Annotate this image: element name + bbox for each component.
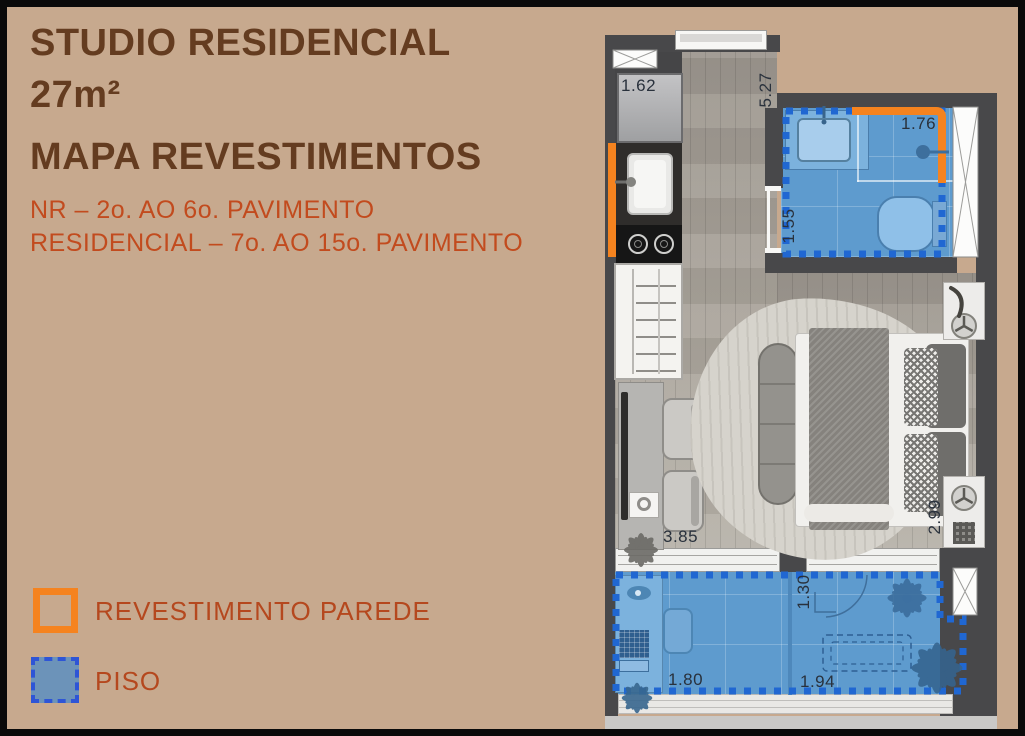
dim-bath-depth: 1.55 — [779, 202, 799, 250]
wall-bath-bottom — [765, 257, 957, 273]
map-title: MAPA REVESTIMENTOS — [30, 136, 482, 179]
dim-balcony-depth: 1.30 — [794, 568, 814, 616]
wardrobe — [614, 263, 683, 380]
decor-tray — [629, 492, 659, 518]
burner-icon — [628, 234, 648, 254]
wall-bath-top — [777, 93, 997, 108]
legend-wall-label: REVESTIMENTO PAREDE — [95, 596, 431, 627]
exterior-ledge — [605, 716, 997, 730]
page: STUDIO RESIDENCIAL 27m² MAPA REVESTIMENT… — [0, 0, 1025, 736]
wall-bath-left — [765, 108, 783, 188]
shower-glass-v — [857, 110, 859, 182]
dim-bath-width: 1.76 — [901, 114, 936, 134]
sliding-door-left — [615, 548, 780, 572]
pillow-zigzag-1 — [904, 348, 938, 426]
subtitle-floors-residencial: RESIDENCIAL – 7o. AO 15o. PAVIMENTO — [30, 229, 523, 258]
page-title: STUDIO RESIDENCIAL — [30, 22, 451, 65]
wardrobe-rod — [658, 269, 660, 374]
balcony-railing — [618, 694, 953, 714]
armchair-2 — [662, 470, 704, 532]
legend-floor-swatch — [31, 657, 79, 703]
cooktop — [616, 225, 682, 263]
wall-covering-stripe-kitchen — [608, 143, 616, 257]
bath-door-leaf — [767, 191, 770, 248]
balcony-chair — [663, 608, 693, 654]
window-glass — [680, 34, 762, 42]
tv — [621, 392, 628, 520]
area-value: 27m² — [30, 74, 121, 117]
dim-hall: 5.27 — [756, 66, 776, 114]
wall-bottom-right-block — [940, 548, 997, 718]
laptop-screen — [619, 660, 649, 672]
decor-plant-box — [953, 522, 975, 544]
toilet-tank — [932, 201, 947, 247]
dim-living-width: 3.85 — [663, 527, 698, 547]
laptop-keyboard — [619, 630, 649, 658]
bath-sink — [797, 118, 851, 162]
legend-floor-label: PISO — [95, 666, 161, 697]
dim-living-depth: 2.99 — [925, 493, 945, 541]
decor-eye — [627, 586, 651, 600]
floor-plan: 1.62 5.27 1.76 1.55 3.85 2.99 1.30 1.80 … — [605, 30, 997, 730]
window-top — [675, 30, 767, 50]
nightstand-top — [943, 282, 985, 340]
kitchen-sink — [627, 153, 673, 215]
blanket — [809, 328, 889, 530]
dim-fridge: 1.62 — [621, 76, 656, 96]
toilet-bowl — [877, 196, 935, 252]
shower-glass-h — [857, 180, 953, 182]
hanger-rack — [636, 270, 676, 373]
balcony-divider — [788, 572, 792, 695]
burner-icon — [654, 234, 674, 254]
bench-ottoman — [758, 343, 798, 505]
dim-balcony-right: 1.94 — [800, 672, 835, 692]
subtitle-floors-nr: NR – 2o. AO 6o. PAVIMENTO — [30, 196, 375, 225]
dim-balcony-left: 1.80 — [668, 670, 703, 690]
shaft-x-icon — [953, 107, 978, 257]
wall-balcony-left-stub — [605, 690, 618, 718]
sheet-fold — [804, 504, 894, 522]
legend-wall-swatch — [33, 588, 78, 633]
